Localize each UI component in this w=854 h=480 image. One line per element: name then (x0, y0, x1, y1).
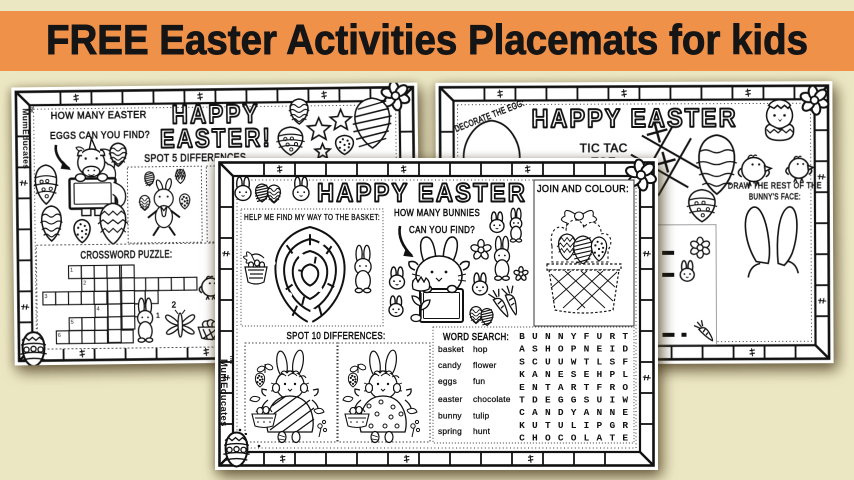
svg-text:F: F (622, 356, 628, 367)
svg-text:TIC TAC: TIC TAC (580, 143, 628, 155)
svg-text:JOIN AND COLOUR:: JOIN AND COLOUR: (537, 183, 629, 195)
svg-text:E: E (597, 344, 603, 355)
svg-text:U: U (597, 395, 603, 406)
svg-text:D: D (622, 344, 628, 355)
svg-text:S: S (584, 395, 590, 406)
svg-text:EASTER!: EASTER! (160, 122, 272, 153)
svg-text:Y: Y (571, 331, 577, 342)
svg-text:H: H (532, 433, 538, 444)
svg-text:H: H (545, 344, 551, 355)
svg-text:O: O (545, 433, 551, 444)
svg-text:S: S (532, 344, 538, 355)
svg-text:T: T (622, 331, 628, 342)
svg-text:E: E (622, 433, 628, 444)
svg-text:T: T (519, 395, 525, 406)
svg-text:S: S (609, 356, 615, 367)
svg-text:F: F (597, 382, 603, 393)
svg-text:HAPPY EASTER: HAPPY EASTER (531, 105, 737, 134)
svg-text:U: U (532, 420, 538, 431)
svg-text:E: E (622, 407, 628, 418)
svg-text:hunt: hunt (473, 426, 491, 436)
svg-text:A: A (532, 369, 538, 380)
svg-text:A: A (597, 433, 603, 444)
svg-text:A: A (584, 407, 590, 418)
svg-text:E: E (545, 395, 551, 406)
svg-text:FREE Easter Activities Placema: FREE Easter Activities Placemats for kid… (46, 16, 808, 63)
svg-text:I: I (584, 420, 590, 431)
svg-text:U: U (558, 356, 564, 367)
svg-text:SPOT 10 DIFFERENCES:: SPOT 10 DIFFERENCES: (287, 330, 386, 342)
svg-text:HELP ME FIND MY WAY TO THE BAS: HELP ME FIND MY WAY TO THE BASKET: (244, 213, 380, 222)
svg-text:HOW MANY EASTER: HOW MANY EASTER (51, 109, 147, 122)
svg-text:K: K (519, 420, 525, 431)
svg-text:N: N (545, 407, 551, 418)
svg-text:E: E (558, 369, 564, 380)
svg-text:1: 1 (70, 268, 73, 274)
svg-text:BUNNY'S FACE:: BUNNY'S FACE: (749, 192, 801, 201)
svg-text:2: 2 (172, 300, 177, 309)
svg-text:1: 1 (156, 313, 160, 320)
svg-text:C: C (519, 407, 525, 418)
svg-text:N: N (545, 369, 551, 380)
svg-text:W: W (622, 395, 628, 406)
svg-text:A: A (519, 344, 525, 355)
svg-text:tulip: tulip (473, 411, 490, 421)
svg-text:B: B (519, 331, 525, 342)
svg-text:C: C (519, 433, 525, 444)
svg-text:N: N (558, 331, 564, 342)
svg-text:D: D (532, 395, 538, 406)
svg-text:S: S (571, 369, 577, 380)
svg-text:R: R (622, 420, 628, 431)
svg-text:O: O (622, 382, 628, 393)
svg-text:I: I (609, 395, 615, 406)
svg-text:O: O (558, 344, 564, 355)
svg-text:EGGS CAN YOU FIND?: EGGS CAN YOU FIND? (50, 129, 150, 142)
svg-text:T: T (584, 356, 590, 367)
svg-text:HOW MANY BUNNIES: HOW MANY BUNNIES (394, 208, 480, 219)
svg-text:W: W (571, 356, 577, 367)
svg-text:C: C (532, 356, 538, 367)
svg-text:R: R (571, 382, 577, 393)
svg-text:easter: easter (438, 394, 462, 404)
svg-text:G: G (609, 420, 615, 431)
svg-text:P: P (571, 344, 577, 355)
svg-text:hop: hop (473, 344, 488, 354)
svg-text:Y: Y (571, 407, 577, 418)
svg-text:eggs: eggs (438, 376, 457, 386)
svg-text:WORD SEARCH:: WORD SEARCH: (443, 331, 509, 343)
svg-text:N: N (584, 344, 590, 355)
svg-text:L: L (571, 420, 577, 431)
svg-text:T: T (545, 420, 551, 431)
svg-text:N: N (545, 331, 551, 342)
svg-text:O: O (571, 433, 577, 444)
svg-text:G: G (558, 395, 564, 406)
svg-text:MumEducates: MumEducates (20, 108, 31, 169)
svg-text:fun: fun (473, 376, 485, 386)
svg-text:L: L (597, 356, 603, 367)
svg-text:E: E (584, 369, 590, 380)
svg-text:N: N (597, 407, 603, 418)
svg-text:L: L (622, 369, 628, 380)
svg-text:A: A (558, 382, 564, 393)
svg-text:L: L (584, 433, 590, 444)
svg-text:C: C (558, 433, 564, 444)
svg-text:DRAW THE REST OF THE: DRAW THE REST OF THE (728, 181, 822, 190)
svg-text:S: S (519, 356, 525, 367)
svg-text:A: A (532, 407, 538, 418)
svg-text:bunny: bunny (438, 411, 462, 421)
svg-text:HAPPY EASTER: HAPPY EASTER (317, 178, 527, 208)
svg-text:N: N (532, 382, 538, 393)
svg-text:K: K (519, 369, 525, 380)
svg-text:G: G (571, 395, 577, 406)
svg-text:E: E (519, 382, 525, 393)
svg-text:P: P (597, 420, 603, 431)
svg-text:F: F (584, 331, 590, 342)
svg-text:CROSSWORD PUZZLE:: CROSSWORD PUZZLE: (80, 249, 172, 262)
svg-text:U: U (532, 331, 538, 342)
svg-text:N: N (609, 407, 615, 418)
svg-text:T: T (545, 382, 551, 393)
svg-text:P: P (609, 369, 615, 380)
svg-text:5: 5 (71, 320, 74, 326)
svg-text:R: R (609, 382, 615, 393)
svg-text:chocolate: chocolate (473, 394, 511, 404)
svg-text:6: 6 (58, 333, 61, 339)
svg-text:I: I (609, 344, 615, 355)
svg-text:flower: flower (473, 360, 497, 370)
svg-text:U: U (597, 331, 603, 342)
svg-text:R: R (609, 331, 615, 342)
svg-text:basket: basket (438, 344, 464, 354)
svg-text:D: D (558, 407, 564, 418)
svg-text:T: T (609, 433, 615, 444)
svg-text:U: U (558, 420, 564, 431)
svg-text:4: 4 (96, 306, 99, 312)
svg-text:2: 2 (83, 281, 86, 287)
svg-text:candy: candy (438, 360, 462, 370)
svg-text:spring: spring (438, 426, 462, 436)
svg-text:MumEducates: MumEducates (218, 359, 229, 427)
svg-text:CAN YOU FIND?: CAN YOU FIND? (409, 225, 475, 236)
svg-text:T: T (584, 382, 590, 393)
svg-text:3: 3 (44, 294, 47, 300)
svg-text:U: U (545, 356, 551, 367)
svg-text:H: H (597, 369, 603, 380)
